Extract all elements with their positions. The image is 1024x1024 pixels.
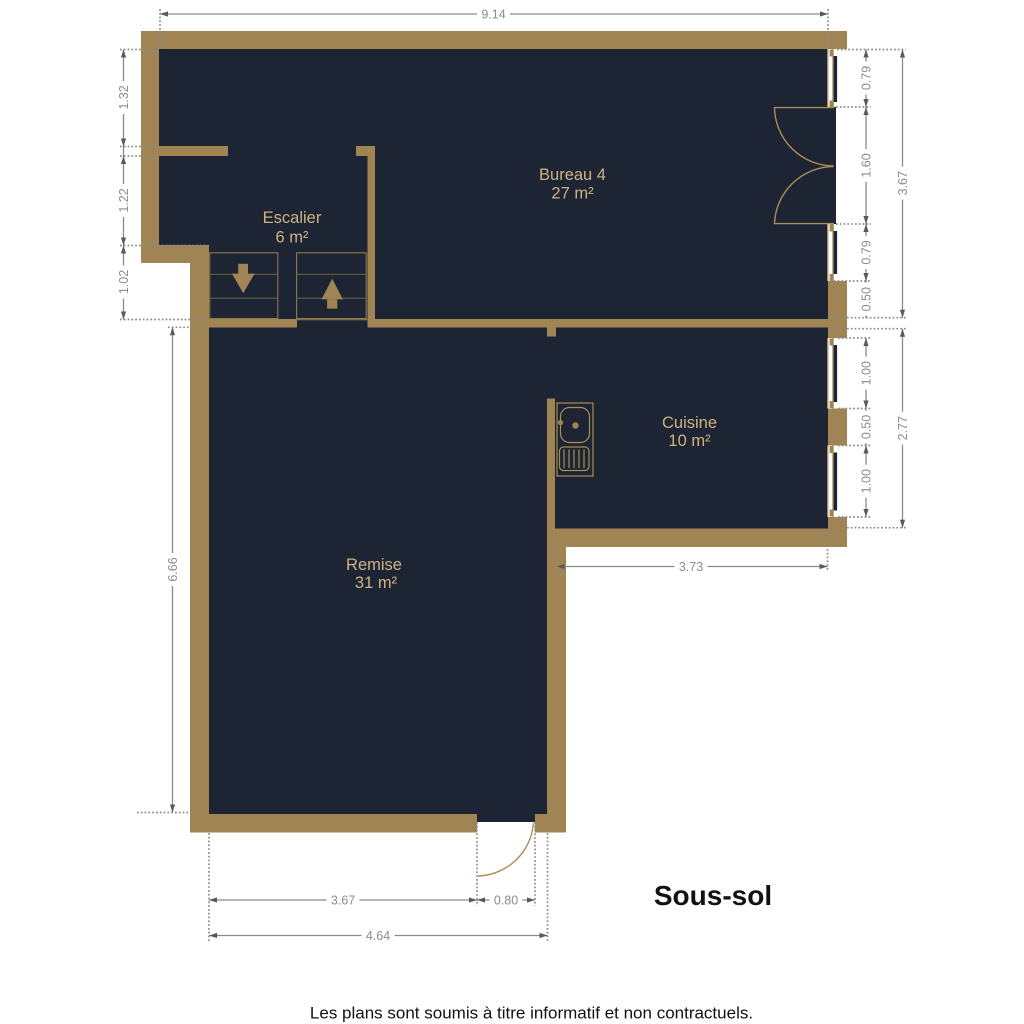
svg-text:3.73: 3.73 (679, 560, 703, 574)
svg-text:1.60: 1.60 (860, 153, 874, 177)
svg-text:3.67: 3.67 (896, 171, 910, 195)
svg-text:31 m²: 31 m² (355, 574, 398, 592)
svg-text:1.22: 1.22 (117, 188, 131, 212)
svg-text:Cuisine: Cuisine (662, 414, 717, 432)
svg-text:Sous-sol: Sous-sol (654, 880, 772, 911)
svg-text:0.79: 0.79 (860, 240, 874, 264)
svg-text:3.67: 3.67 (331, 894, 355, 908)
svg-text:27 m²: 27 m² (551, 185, 594, 203)
svg-text:1.02: 1.02 (117, 270, 131, 294)
svg-text:1.00: 1.00 (860, 361, 874, 385)
svg-text:0.80: 0.80 (494, 894, 518, 908)
svg-text:0.50: 0.50 (860, 415, 874, 439)
svg-text:0.79: 0.79 (860, 66, 874, 90)
svg-text:10 m²: 10 m² (668, 432, 711, 450)
svg-text:Remise: Remise (346, 556, 402, 574)
svg-text:Les plans sont soumis à titre: Les plans sont soumis à titre informatif… (310, 1004, 753, 1023)
svg-text:Escalier: Escalier (263, 209, 322, 227)
svg-text:6 m²: 6 m² (276, 229, 310, 247)
svg-text:4.64: 4.64 (366, 929, 390, 943)
svg-text:1.32: 1.32 (117, 85, 131, 109)
svg-text:Bureau 4: Bureau 4 (539, 166, 606, 184)
svg-text:9.14: 9.14 (481, 8, 505, 22)
svg-text:0.50: 0.50 (860, 287, 874, 311)
svg-text:1.00: 1.00 (860, 469, 874, 493)
svg-text:6.66: 6.66 (166, 557, 180, 581)
svg-text:2.77: 2.77 (896, 416, 910, 440)
